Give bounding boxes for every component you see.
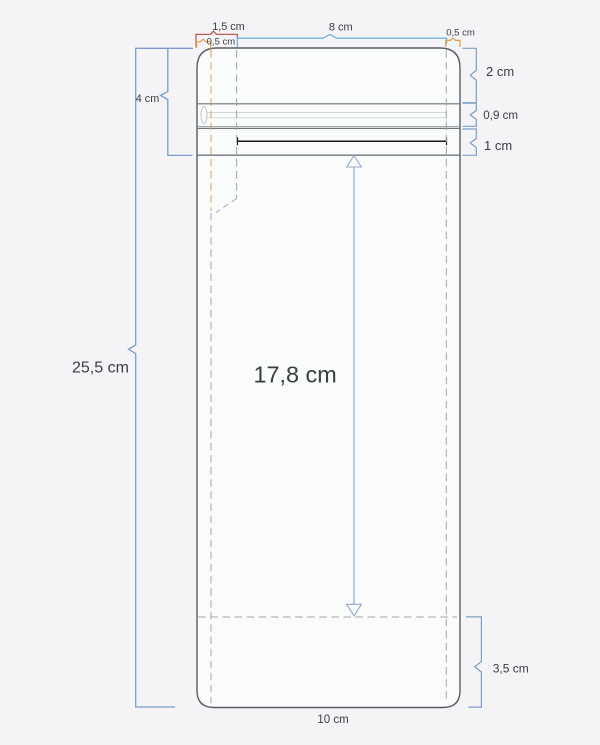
svg-text:4 cm: 4 cm [136, 93, 159, 105]
svg-text:1 cm: 1 cm [484, 138, 512, 153]
svg-text:8 cm: 8 cm [329, 21, 353, 33]
svg-text:1,5 cm: 1,5 cm [212, 21, 244, 33]
svg-text:3,5 cm: 3,5 cm [493, 662, 529, 676]
svg-text:0,9 cm: 0,9 cm [483, 109, 518, 122]
svg-text:0,5 cm: 0,5 cm [446, 28, 475, 39]
svg-text:17,8 cm: 17,8 cm [254, 362, 337, 388]
svg-text:2 cm: 2 cm [486, 64, 514, 79]
svg-text:25,5 cm: 25,5 cm [72, 360, 129, 377]
svg-text:0,5 cm: 0,5 cm [207, 37, 236, 48]
svg-text:10 cm: 10 cm [317, 714, 348, 726]
